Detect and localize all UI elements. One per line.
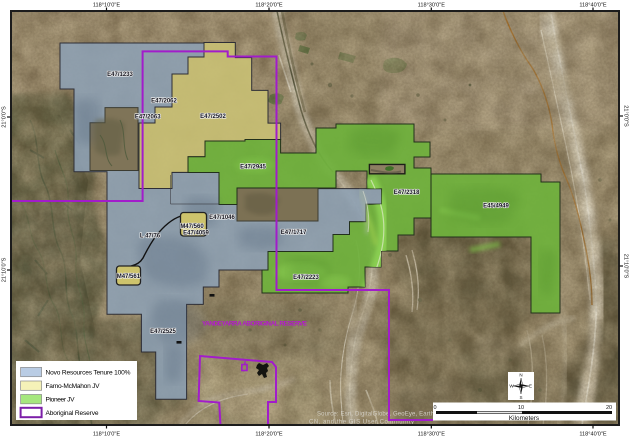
svg-text:20: 20 <box>606 405 612 411</box>
svg-text:E47/1233: E47/1233 <box>107 72 133 78</box>
svg-text:E47/2223: E47/2223 <box>293 275 319 281</box>
svg-text:0: 0 <box>434 405 437 411</box>
svg-text:118°40'0"E: 118°40'0"E <box>579 432 607 437</box>
svg-text:21°0'0"S: 21°0'0"S <box>2 106 8 128</box>
svg-text:118°30'0"E: 118°30'0"E <box>418 432 446 437</box>
svg-text:YANDEYARRA ABORIGINAL RESERVE: YANDEYARRA ABORIGINAL RESERVE <box>202 321 307 328</box>
svg-text:E47/2525: E47/2525 <box>150 329 176 335</box>
svg-text:N: N <box>519 373 522 378</box>
svg-text:21°10'0"S: 21°10'0"S <box>623 254 629 279</box>
svg-text:21°0'0"S: 21°0'0"S <box>623 105 629 127</box>
svg-text:E47/1046: E47/1046 <box>209 215 235 221</box>
svg-text:S: S <box>519 395 522 400</box>
svg-text:10: 10 <box>518 405 524 411</box>
svg-text:L 47/76: L 47/76 <box>140 234 161 240</box>
svg-text:E45/4949: E45/4949 <box>483 204 509 210</box>
svg-text:M47/560: M47/560 <box>180 224 204 230</box>
svg-text:Kilometers: Kilometers <box>509 415 539 422</box>
svg-text:Source: Esri, DigitalGlobe, Ge: Source: Esri, DigitalGlobe, GeoEye, Eart… <box>317 412 439 418</box>
svg-text:E47/2318: E47/2318 <box>394 190 420 196</box>
svg-text:E47/4059: E47/4059 <box>183 231 209 237</box>
svg-text:Farno-McMahon JV: Farno-McMahon JV <box>46 383 101 390</box>
svg-text:E47/1717: E47/1717 <box>281 230 307 236</box>
svg-text:118°20'0"E: 118°20'0"E <box>255 432 283 437</box>
svg-text:118°10'0"E: 118°10'0"E <box>93 432 121 437</box>
svg-text:E47/2062: E47/2062 <box>151 99 177 105</box>
svg-text:Aboriginal Reserve: Aboriginal Reserve <box>46 410 99 417</box>
svg-text:E: E <box>529 384 532 389</box>
svg-text:E47/2063: E47/2063 <box>135 115 161 121</box>
svg-text:Pioneer JV: Pioneer JV <box>46 397 76 404</box>
svg-text:M47/561: M47/561 <box>117 274 141 280</box>
svg-text:E47/2502: E47/2502 <box>200 114 226 120</box>
svg-text:21°10'0"S: 21°10'0"S <box>2 257 8 282</box>
svg-text:E47/2945: E47/2945 <box>240 165 266 171</box>
svg-text:Novo Resources Tenure 100%: Novo Resources Tenure 100% <box>46 370 131 377</box>
